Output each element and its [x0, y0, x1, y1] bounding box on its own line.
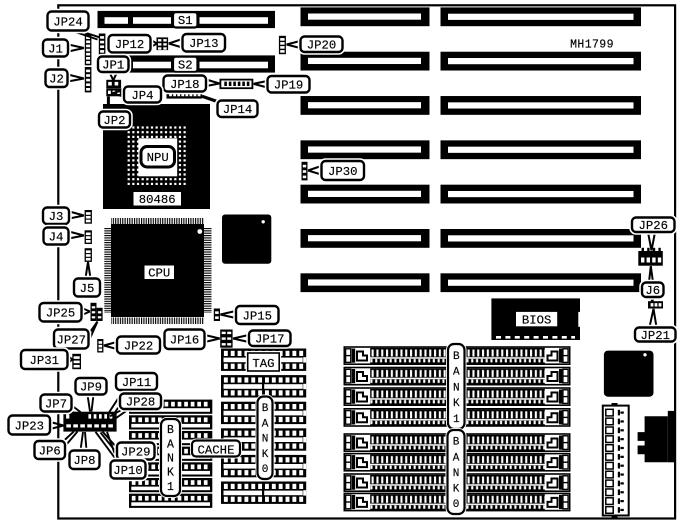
- svg-text:JP19: JP19: [274, 79, 304, 93]
- svg-text:JP1: JP1: [102, 59, 124, 73]
- svg-text:A: A: [453, 452, 460, 464]
- svg-text:J3: J3: [49, 210, 64, 224]
- svg-text:B: B: [167, 424, 174, 437]
- svg-text:K: K: [453, 398, 460, 410]
- svg-text:JP2: JP2: [103, 114, 125, 128]
- svg-text:N: N: [453, 382, 460, 394]
- svg-text:1: 1: [453, 414, 460, 426]
- svg-text:JP15: JP15: [242, 309, 272, 323]
- svg-text:S2: S2: [178, 59, 193, 73]
- svg-text:TAG: TAG: [252, 357, 274, 371]
- svg-text:S1: S1: [178, 14, 193, 28]
- svg-text:JP6: JP6: [39, 444, 61, 458]
- svg-text:JP14: JP14: [223, 103, 253, 117]
- svg-text:JP30: JP30: [328, 165, 358, 179]
- svg-text:JP22: JP22: [124, 339, 154, 353]
- svg-text:K: K: [453, 483, 460, 495]
- svg-text:J4: J4: [49, 230, 64, 244]
- svg-text:CPU: CPU: [148, 267, 170, 281]
- svg-text:0: 0: [453, 499, 460, 511]
- svg-text:JP10: JP10: [113, 464, 143, 478]
- svg-text:N: N: [167, 453, 174, 466]
- svg-text:1: 1: [167, 481, 174, 494]
- svg-text:JP27: JP27: [56, 333, 86, 347]
- svg-text:JP12: JP12: [115, 38, 145, 52]
- svg-text:JP11: JP11: [122, 376, 152, 390]
- svg-text:B: B: [453, 437, 460, 449]
- svg-text:N: N: [453, 468, 460, 480]
- svg-text:JP26: JP26: [638, 219, 668, 233]
- svg-text:K: K: [167, 467, 174, 480]
- svg-text:JP18: JP18: [170, 78, 200, 92]
- svg-text:B: B: [453, 351, 460, 363]
- svg-text:NPU: NPU: [147, 151, 169, 165]
- svg-text:A: A: [262, 418, 269, 430]
- svg-text:JP21: JP21: [640, 329, 670, 343]
- svg-text:K: K: [262, 449, 269, 461]
- svg-text:JP8: JP8: [73, 454, 95, 468]
- svg-text:MH1799: MH1799: [570, 39, 614, 52]
- svg-text:JP4: JP4: [131, 89, 153, 103]
- svg-text:J2: J2: [49, 73, 64, 87]
- svg-text:JP16: JP16: [170, 334, 200, 348]
- svg-text:J6: J6: [645, 284, 660, 298]
- svg-text:JP23: JP23: [14, 419, 44, 433]
- svg-text:J1: J1: [48, 42, 63, 56]
- svg-text:A: A: [167, 438, 174, 451]
- svg-text:80486: 80486: [139, 193, 176, 207]
- svg-text:JP29: JP29: [121, 445, 151, 459]
- svg-text:JP28: JP28: [126, 396, 156, 410]
- svg-text:A: A: [453, 367, 460, 379]
- svg-text:JP7: JP7: [45, 397, 67, 411]
- svg-text:BIOS: BIOS: [522, 314, 552, 328]
- svg-text:JP20: JP20: [307, 39, 337, 53]
- svg-text:JP31: JP31: [29, 354, 59, 368]
- svg-text:CACHE: CACHE: [198, 443, 235, 457]
- svg-text:B: B: [262, 403, 269, 415]
- svg-text:JP25: JP25: [46, 307, 76, 321]
- svg-text:JP13: JP13: [189, 37, 219, 51]
- svg-text:N: N: [262, 434, 269, 446]
- svg-text:J5: J5: [80, 282, 95, 296]
- svg-text:JP17: JP17: [255, 333, 285, 347]
- svg-text:JP9: JP9: [80, 381, 102, 395]
- svg-text:JP24: JP24: [53, 15, 83, 29]
- svg-text:0: 0: [262, 464, 269, 476]
